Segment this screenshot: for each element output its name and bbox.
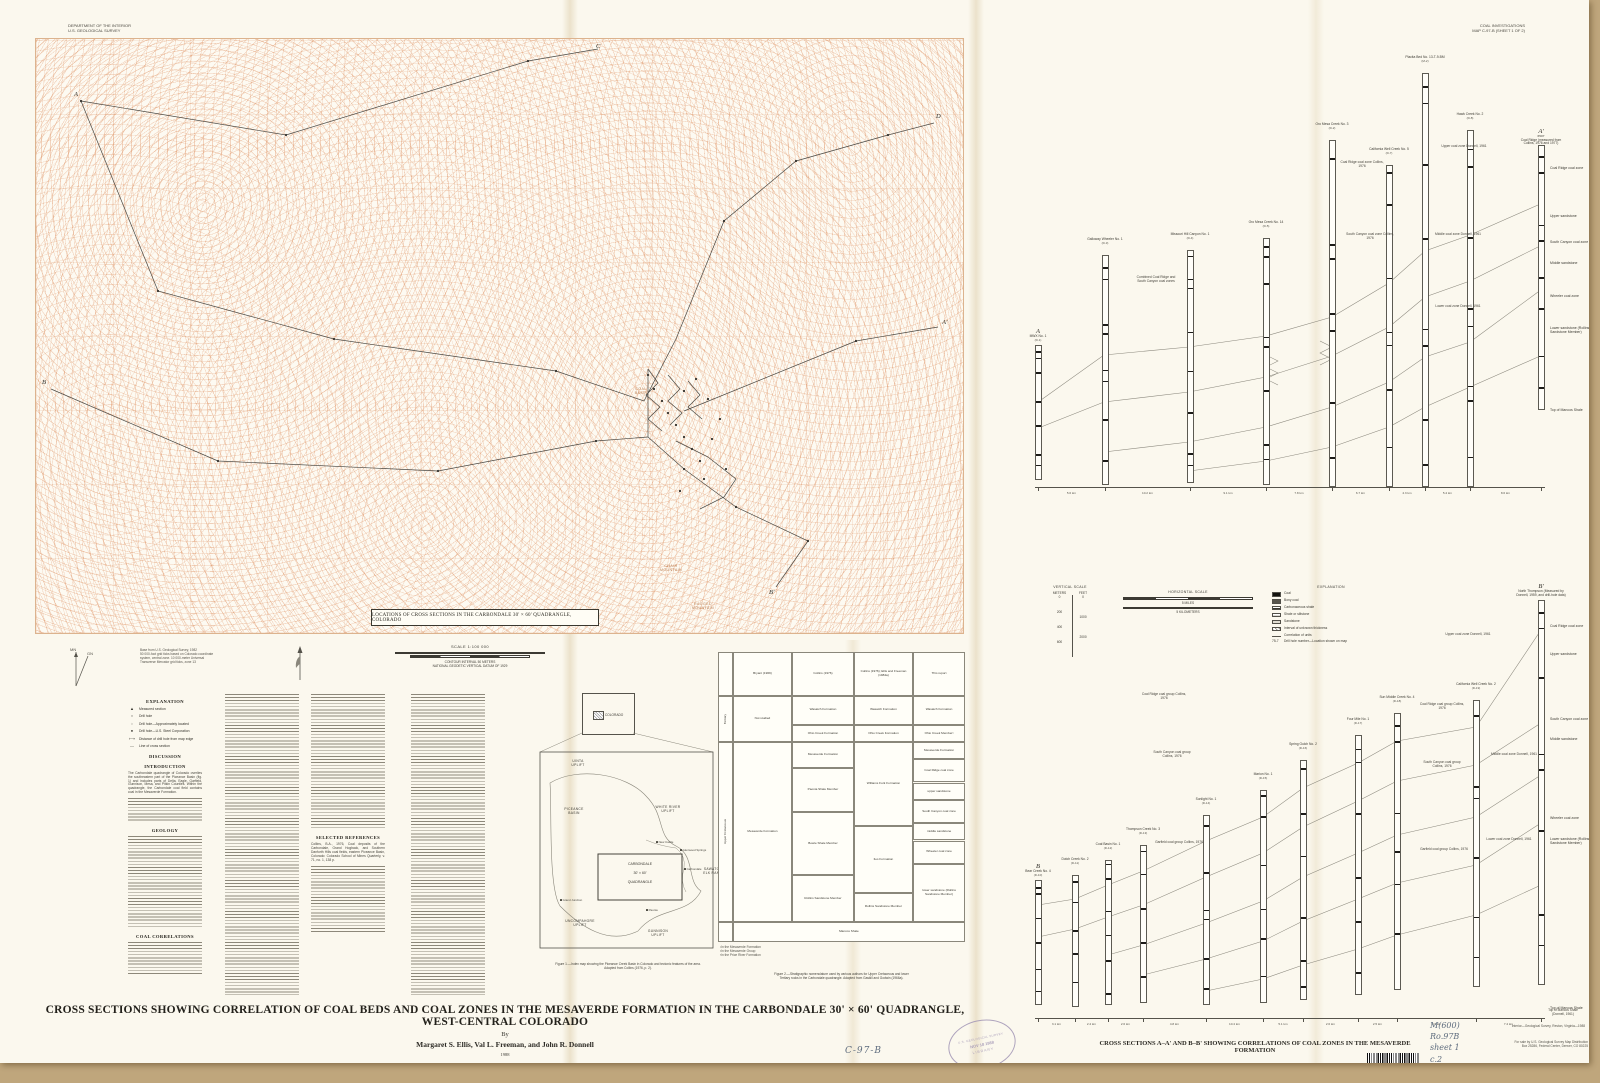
baseline-tick [1332, 487, 1333, 491]
coal-bed-band [1356, 762, 1361, 764]
map-legend-item: ⟼Distance of drill hole from map edge [128, 737, 202, 742]
coal-bed-band [1204, 958, 1209, 960]
quad-line3: QUADRANGLE [598, 880, 682, 884]
horizontal-scale-bar-km [1123, 607, 1253, 610]
quadrangle-rect-label: CARBONDALE 30' × 60' QUADRANGLE [598, 862, 682, 885]
coal-bed-band [1204, 825, 1209, 827]
drill-hole-marker [855, 340, 857, 342]
figure1-caption: Figure 1.—Index map showing the Piceance… [523, 962, 733, 970]
section-heading: INTRODUCTION [128, 764, 202, 769]
distance-label: 2.6 km [1121, 1022, 1130, 1026]
drill-hole-label: Thompson Creek No. 3(D-13) [1117, 828, 1169, 835]
coal-bed-band [1423, 86, 1428, 88]
coal-bed-band [1264, 246, 1269, 248]
strat-unit-label: Middle sandstone [1550, 262, 1589, 266]
coal-bed-band [1539, 830, 1544, 832]
drill-hole-column [1538, 145, 1545, 410]
map-scale-title: SCALE 1:100 000 [380, 645, 560, 650]
mancos-line2: (Donnell, 1961) [1543, 1012, 1583, 1016]
body-text: Collins, B.A., 1976, Coal deposits of th… [311, 843, 385, 862]
mountain-label: COALBASIN [621, 387, 661, 395]
handwritten-annotations: M(600)Ro.97Bsheet 1c.2 [1430, 1020, 1460, 1063]
drill-hole-marker [719, 418, 721, 420]
strat-table-cell: Tertiary [718, 696, 733, 742]
coal-bed-band [1106, 935, 1111, 937]
coal-bed-band [1330, 258, 1335, 260]
coal-bed-band [1395, 725, 1400, 727]
coal-bed-band [1474, 715, 1479, 717]
coal-bed-band [1468, 326, 1473, 328]
map-legend-symbol-icon: — [128, 744, 136, 749]
map-legend-symbol-icon: ⟼ [128, 737, 136, 742]
strat-unit-label: South Canyon coal zone [1550, 718, 1589, 722]
coal-bed-band [1539, 172, 1544, 174]
baseline-tick [1190, 487, 1191, 491]
coal-bed-band [1036, 425, 1041, 427]
drill-hole-label: B'North Thompson (Measured by Donnell, 1… [1515, 583, 1567, 598]
coal-bed-band [1330, 313, 1335, 315]
drill-hole-column [1140, 845, 1147, 1003]
section-heading: SELECTED REFERENCES [311, 835, 385, 840]
baseline-tick [1038, 1018, 1039, 1022]
coal-bed-band [1539, 240, 1544, 242]
drill-hole-column [1300, 760, 1307, 1000]
tectonic-feature-label: WHITE RIVERUPLIFT [650, 806, 686, 814]
coal-bed-band [1261, 938, 1266, 940]
base-credit: Base from U.S. Geological Survey, 198250… [140, 648, 270, 664]
coal-bed-band [1261, 865, 1266, 867]
drill-hole-column [1263, 238, 1270, 485]
coal-bed-band [1539, 356, 1544, 358]
drill-hole-column [1329, 140, 1336, 487]
drill-hole-label: Hawk Creek No. 2(D-8) [1444, 113, 1496, 120]
coal-bed-band [1261, 976, 1266, 978]
coal-zone-annotation: Lower coal zone Donnell, 1961 [1485, 838, 1533, 842]
drill-hole-marker [711, 438, 713, 440]
drill-hole-label: Spring Gulch No. 2(D-16) [1277, 743, 1329, 750]
map-legend-symbol-icon: ▲ [128, 707, 136, 712]
coal-bed-band [1261, 816, 1266, 818]
coal-bed-band [1468, 166, 1473, 168]
svg-text:GN: GN [87, 651, 93, 656]
coal-zone-annotation: South Canyon coal zone Collins, 1976 [1346, 233, 1394, 240]
coal-bed-band [1539, 754, 1544, 756]
town-label: Glenwood Springs [680, 848, 706, 852]
strat-table-cell: Paonia Shale Member [792, 768, 854, 812]
coal-bed-band [1539, 612, 1544, 614]
baseline-tick [1263, 1018, 1264, 1022]
coal-bed-band [1423, 164, 1428, 166]
strat-unit-label: Top of Mancos Shale [1550, 409, 1589, 413]
legend-swatch-coal-icon [1272, 592, 1281, 597]
miles-label: 5 MILES [1108, 601, 1268, 605]
coal-bed-band [1141, 908, 1146, 910]
coal-bed-band [1141, 976, 1146, 978]
drill-hole-marker [735, 506, 737, 508]
coal-bed-band [1539, 945, 1544, 947]
strat-table-cell [718, 652, 733, 696]
strat-table-cell: This report [913, 652, 965, 696]
drill-hole-label: California Well Creek No. 5(D-7) [1363, 148, 1415, 155]
body-text: The Carbondale quadrangle of Colorado ov… [128, 772, 202, 795]
map-legend-item: ●Drill hole—U.S. Steel Corporation [128, 729, 202, 734]
coal-bed-band [1387, 204, 1392, 206]
xsec-legend-item: Shale or siltstone [1272, 613, 1390, 618]
strat-table-cell: Ohio Creek Formation [792, 725, 854, 742]
strat-table-cell: Mesaverde Formation [733, 742, 792, 922]
section-heading: GEOLOGY [128, 828, 202, 833]
coal-zone-annotation: South Canyon coal group Collins, 1976 [1418, 761, 1466, 768]
section-endpoint-label: A [74, 91, 78, 98]
coal-bed-band [1106, 960, 1111, 962]
coal-bed-band [1073, 930, 1078, 932]
strat-table-cell [718, 922, 733, 942]
cross-section-lines-overlay [36, 39, 963, 633]
drill-hole-label: A'6507Coal Ridge (measured from Collins,… [1515, 128, 1567, 146]
strat-table-cell: Wasatch Formation [854, 696, 913, 725]
baseline-tick [1075, 1018, 1076, 1022]
authors: Margaret S. Ellis, Val L. Freeman, and J… [40, 1040, 970, 1049]
coal-bed-band [1036, 358, 1041, 360]
coal-bed-band [1264, 390, 1269, 392]
drill-hole-label: Placita Bed No. 13-T-9-BM(M-2) [1399, 56, 1451, 63]
map-legend-symbol-icon: ○ [128, 714, 136, 719]
coal-bed-band [1539, 277, 1544, 279]
coal-bed-band [1330, 457, 1335, 459]
figure1-caption-line2: Adapted from Collins (1976, p. 2). [523, 966, 733, 970]
xsec-caption: CROSS SECTIONS A–A' AND B–B' SHOWING COR… [1085, 1040, 1425, 1054]
strat-unit-label: Middle sandstone [1550, 738, 1589, 742]
byline: By [40, 1031, 970, 1038]
drill-hole-column [1102, 255, 1109, 485]
baseline-tick [1206, 1018, 1207, 1022]
distance-label: 4.3 km [1402, 491, 1411, 495]
coal-zone-annotation: South Canyon coal group Collins, 1976 [1148, 751, 1196, 758]
coal-bed-band [1261, 909, 1266, 911]
sale-note: For sale by U.S. Geological Survey Map D… [1440, 1040, 1588, 1048]
coal-bed-band [1073, 953, 1078, 955]
drill-hole-marker [795, 160, 797, 162]
distance-label: 2.4 km [1087, 1022, 1096, 1026]
strat-unit-label: Coal Ridge coal zone [1550, 625, 1589, 629]
map-legend-item: ◌Drill hole—Approximately located [128, 722, 202, 727]
drill-hole-column [1105, 860, 1112, 1005]
strat-table-cell: Not studied [733, 696, 792, 742]
coal-bed-band [1264, 256, 1269, 258]
coal-bed-band [1036, 918, 1041, 920]
coal-bed-band [1103, 333, 1108, 335]
drill-hole-label: California Well Creek No. 2(D-19) [1450, 683, 1502, 690]
coal-bed-band [1356, 813, 1361, 815]
drill-hole-marker [80, 100, 82, 102]
coal-bed-band [1073, 902, 1078, 904]
drill-hole-number-sample: 75-7 [1272, 640, 1284, 644]
figure1-index-map: COLORADO UINTAUPLIFTPICEANCEBASINWHITE R… [538, 648, 718, 993]
section-endpoint-label: B' [769, 589, 774, 596]
coal-bed-band [1188, 279, 1193, 281]
coal-bed-band [1106, 993, 1111, 995]
coal-bed-band [1106, 864, 1111, 866]
baseline-tick [1303, 1018, 1304, 1022]
coal-bed-band [1301, 917, 1306, 919]
mountain-label: CHAIRMOUNTAIN [651, 564, 691, 572]
coal-bed-band [1468, 400, 1473, 402]
coal-bed-band [1395, 813, 1400, 815]
strat-table-cell: Bryant (1969) [733, 652, 792, 696]
town-label: New Castle [656, 840, 673, 844]
coal-bed-band [1539, 156, 1544, 158]
baseline-tick [1389, 487, 1390, 491]
coal-zone-annotation: Coal Ridge coal zone Collins, 1976 [1338, 161, 1386, 168]
baseline-tick [1425, 487, 1426, 491]
coal-bed-band [1301, 768, 1306, 770]
drill-hole-column [1260, 790, 1267, 1003]
coal-bed-band [1539, 308, 1544, 310]
vertical-scale: VERTICAL SCALE METERS 0200400600 FEET 01… [1040, 585, 1100, 657]
coal-bed-band [1141, 851, 1146, 853]
legend-swatch-shale-icon [1272, 613, 1281, 618]
strat-table-cell: lower sandstone (Rollins Sandstone Membe… [913, 864, 965, 922]
scale-bar-km [395, 652, 545, 655]
coal-bed-band [1474, 957, 1479, 959]
coal-bed-band [1036, 887, 1041, 889]
sale-line2: Box 25286, Federal Center, Denver, CO 80… [1440, 1044, 1588, 1048]
coal-bed-band [1330, 244, 1335, 246]
coal-bed-band [1423, 329, 1428, 331]
distance-label: 3.1 km [1052, 1022, 1061, 1026]
coal-bed-band [1468, 237, 1473, 239]
legend-swatch-sand-icon [1272, 620, 1281, 625]
text-column-4 [411, 694, 485, 999]
distance-label: 5.4 km [1443, 491, 1452, 495]
strat-table-cell: Ohio Creek Member¹ [913, 725, 965, 742]
body-text-lines [311, 866, 385, 934]
section-heading: DISCUSSION [128, 754, 202, 759]
distance-label: 10.4 km [1229, 1022, 1240, 1026]
drill-hole-label: Missouri Hill Canyon No. 1(D-4) [1164, 233, 1216, 240]
coal-bed-band [1036, 991, 1041, 993]
coal-bed-band [1387, 332, 1392, 334]
coal-zone-annotation: Garfield coal group Collins, 1976 [1420, 848, 1468, 852]
legend-swatch-bony-icon [1272, 599, 1281, 604]
agency-line2: U.S. GEOLOGICAL SURVEY [68, 29, 131, 34]
coal-bed-band [1036, 401, 1041, 403]
distance-label: 9.1 km [1223, 491, 1232, 495]
quad-line1: CARBONDALE [598, 862, 682, 866]
baseline-tick [1143, 1018, 1144, 1022]
section-line [81, 101, 644, 401]
drill-hole-column [1203, 815, 1210, 1005]
paper: DEPARTMENT OF THE INTERIOR U.S. GEOLOGIC… [0, 0, 1589, 1063]
coal-bed-band [1106, 911, 1111, 913]
coal-bed-band [1036, 372, 1041, 374]
north-arrow-icon [292, 644, 308, 682]
section-heading: COAL CORRELATIONS [128, 934, 202, 939]
drill-hole-marker [217, 460, 219, 462]
legend-swatch-corr-icon [1272, 636, 1281, 637]
strat-unit-label: Wheeler coal zone [1550, 817, 1589, 821]
body-text-lines [311, 694, 385, 830]
drill-hole-column [1187, 250, 1194, 483]
distance-label: 6.7 km [1356, 491, 1365, 495]
section-endpoint-label: C [596, 43, 600, 50]
coal-bed-band [1036, 465, 1041, 467]
baseline-tick [1358, 1018, 1359, 1022]
vertical-scale-ruler [1072, 595, 1073, 657]
strat-unit-label: Upper sandstone [1550, 215, 1589, 219]
coal-bed-band [1387, 389, 1392, 391]
coal-bed-band [1423, 419, 1428, 421]
map-legend-item: ○Drill hole [128, 714, 202, 719]
strat-table-cell: Ohio Creek Formation [854, 725, 913, 742]
text-column-3: SELECTED REFERENCESCollins, B.A., 1976, … [311, 694, 385, 938]
strat-table-cell: Rollins Sandstone Member [792, 875, 854, 921]
coal-bed-band [1073, 982, 1078, 984]
coal-bed-band [1301, 813, 1306, 815]
mancos-note: Top of Mancos Shale (Donnell, 1961) [1543, 1008, 1583, 1016]
horizontal-scale-bar-miles [1123, 597, 1253, 600]
quad-line2: 30' × 60' [598, 871, 682, 875]
text-column-1: EXPLANATION▲Measured section○Drill hole◌… [128, 694, 202, 980]
distance-label: 7.8 km [1294, 491, 1303, 495]
body-text-lines [225, 694, 299, 995]
baseline-tick [1476, 1018, 1477, 1022]
coal-bed-band [1356, 921, 1361, 923]
drill-hole-marker [555, 370, 557, 372]
legend-swatch-carb-icon [1272, 606, 1281, 611]
agency-header: DEPARTMENT OF THE INTERIOR U.S. GEOLOGIC… [68, 24, 131, 34]
coal-bed-band [1539, 914, 1544, 916]
strat-table-cell: Iles Formation [854, 826, 913, 893]
drill-hole-label: Oro Mesa Creek No. 14(D-5) [1240, 221, 1292, 228]
drill-hole-label: Marion No. 1(D-15) [1237, 773, 1289, 780]
coal-bed-band [1264, 444, 1269, 446]
coal-bed-band [1330, 158, 1335, 160]
strat-table-cell: Upper Cretaceous [718, 742, 733, 922]
distance-label: 2.5 km [1373, 1022, 1382, 1026]
handwritten-call-number: C-97-B [845, 1046, 882, 1056]
strat-table-cell: Coal Ridge coal zone [913, 759, 965, 782]
coal-zone-annotation: Lower coal zone Donnell, 1961 [1434, 305, 1482, 309]
drill-hole-marker [647, 374, 649, 376]
coal-bed-band [1204, 919, 1209, 921]
map-legend-item: ▲Measured section [128, 707, 202, 712]
xsec-legend-item: 75-7Drill hole number—Location shown on … [1272, 640, 1390, 644]
drill-hole-marker [285, 134, 287, 136]
xsec-explanation-title: EXPLANATION [1272, 585, 1390, 589]
coal-bed-band [1188, 465, 1193, 467]
coal-bed-band [1036, 942, 1041, 944]
drill-hole-label: Oro Mesa Creek No. 3(D-2) [1306, 123, 1358, 130]
coal-bed-band [1423, 345, 1428, 347]
map-title-box: LOCATIONS OF CROSS SECTIONS IN THE CARBO… [371, 609, 599, 626]
coal-bed-band [1468, 457, 1473, 459]
strat-table-cell: upper sandstone [913, 783, 965, 800]
coal-bed-band [1204, 910, 1209, 912]
drill-hole-marker [725, 468, 727, 470]
map-legend-symbol-icon: ● [128, 729, 136, 734]
coal-bed-band [1036, 969, 1041, 971]
baseline-tick [1105, 487, 1106, 491]
drill-hole-column [1355, 735, 1362, 995]
drill-hole-label: Four Mile No. 1(D-17) [1332, 718, 1384, 725]
coal-bed-band [1539, 677, 1544, 679]
xsec-legend-item: Sandstone [1272, 620, 1390, 625]
coal-zone-annotation: Coal Ridge coal group Collins, 1976 [1140, 693, 1188, 700]
strat-table-cell: middle sandstone [913, 823, 965, 840]
section-line [688, 381, 702, 419]
coal-bed-band [1539, 628, 1544, 630]
barcode [1367, 1053, 1419, 1063]
tectonic-feature-label: UNCOMPAHGREUPLIFT [562, 920, 598, 928]
drill-hole-marker [661, 400, 663, 402]
coal-bed-band [1036, 893, 1041, 895]
xsec-legend-item: Interval of unknown thickness [1272, 627, 1390, 632]
strat-table-cell: Wasatch Formation [792, 696, 854, 725]
coal-bed-band [1264, 337, 1269, 339]
coal-zone-annotation: Upper coal zone Donnell, 1961 [1444, 633, 1492, 637]
section-endpoint-label: A' [942, 319, 947, 326]
coal-bed-band [1141, 874, 1146, 876]
town-label: Carbondale [684, 867, 702, 871]
strat-table-cell: Collins (1976); Ellis and Freeman (1984a… [854, 652, 913, 696]
coal-bed-band [1330, 402, 1335, 404]
baseline-tick [1541, 1018, 1542, 1022]
strat-table-cell: Mesaverde Formation [913, 742, 965, 759]
figure2-caption: Figure 2.—Stratigraphic nomenclature use… [708, 972, 975, 980]
coal-bed-band [1261, 795, 1266, 797]
town-label: Grand Junction [560, 898, 582, 902]
coal-bed-band [1103, 460, 1108, 462]
strat-table-cell: Collins (1976) [792, 652, 854, 696]
coal-bed-band [1264, 459, 1269, 461]
strat-unit-label: Lower sandstone (Rollins Sandstone Membe… [1550, 838, 1589, 846]
coal-bed-band [1264, 283, 1269, 285]
coal-bed-band [1188, 256, 1193, 258]
drill-hole-column [1473, 700, 1480, 987]
coal-bed-band [1468, 149, 1473, 151]
drill-hole-label: Sun Middle Creek No. 4(D-18) [1371, 696, 1423, 703]
coal-bed-band [1423, 103, 1428, 105]
coal-bed-band [1204, 988, 1209, 990]
vertical-scale-feet: FEET 010002000 [1079, 591, 1087, 657]
figure2-strat-table: Bryant (1969)Collins (1976)Collins (1976… [718, 652, 965, 997]
coal-bed-band [1103, 381, 1108, 383]
coal-bed-band [1301, 960, 1306, 962]
drill-hole-column [1394, 713, 1401, 990]
coal-bed-band [1036, 351, 1041, 353]
fold-crease [968, 0, 984, 1063]
drill-hole-column [1035, 345, 1042, 480]
section-line [676, 441, 736, 509]
coal-bed-band [1204, 872, 1209, 874]
coal-bed-band [1423, 238, 1428, 240]
drill-hole-column [1538, 600, 1545, 985]
strat-table-cell: Mesaverde Formation [792, 742, 854, 768]
coal-bed-band [1103, 279, 1108, 281]
drill-hole-marker [683, 436, 685, 438]
coal-zone-annotation: Middle coal zone Donnell, 1961 [1490, 753, 1538, 757]
figure2-grid: Bryant (1969)Collins (1976)Collins (1976… [718, 652, 965, 942]
tectonic-feature-label: GUNNISONUPLIFT [640, 930, 676, 938]
coal-bed-band [1141, 942, 1146, 944]
distance-label: 5.6 km [1067, 491, 1076, 495]
coal-bed-band [1106, 878, 1111, 880]
declination-diagram: MN GN [60, 646, 94, 690]
drill-hole-column [1422, 73, 1429, 487]
strat-table-cell: Mancos Shale [733, 922, 965, 942]
coal-bed-band [1387, 172, 1392, 174]
